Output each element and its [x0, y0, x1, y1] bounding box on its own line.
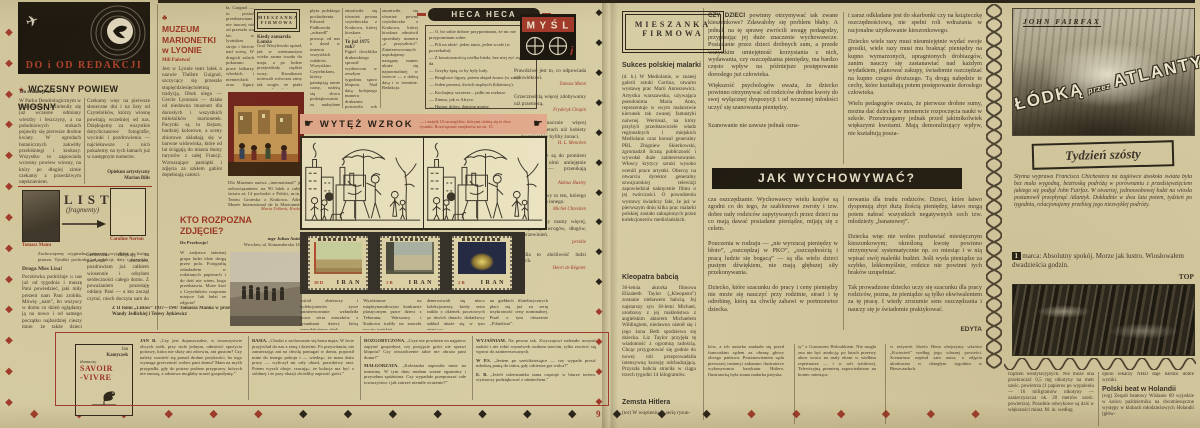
qa-lead: W P.S. — [476, 358, 491, 363]
qa-column-3: ROZGORYCZONA. „Czyż nie powinien on najp… — [364, 338, 466, 400]
wych-bcol1: cza oszczędzanie. Wychowawcy wielu krajó… — [708, 196, 838, 330]
fairfax-byline: JOHN FAIRFAX — [1023, 17, 1101, 27]
column-rule — [843, 12, 844, 164]
kto-headline: KTO ROZPOZNA ZDJĘCIE? — [180, 215, 252, 237]
magazine-spread: ◆◆◆◆◆◆◆◆◆◆◆◆◆ ◆◆◆◆◆◆◆◆◆◆◆◆◆◆ ◆◆◆◆◆◆◆◆◆◆◆… — [0, 0, 1200, 428]
zemsta-body: (tor) W więzieniu za serię rysun- — [622, 410, 696, 424]
left-border-diamond-icons: ◆◆◆◆◆◆◆◆◆◆◆◆◆ — [2, 28, 16, 408]
muzeum-headline: MUZEUM MARIONETKI w LYONIE — [162, 24, 216, 56]
holandia-intro2: opinii lekarzy NHD daje bardzo dobre wyn… — [1102, 372, 1194, 384]
rope-border-horizontal — [1004, 358, 1196, 370]
column-rule — [342, 8, 343, 108]
column-rule — [248, 336, 249, 400]
qa-column-2: BASIA. „Chodzi o zachowanie się brata mę… — [252, 338, 354, 400]
arrow-right-icon — [62, 219, 106, 229]
redakcja-col1: W Parku Dendrologicznym w Przelewicach z… — [19, 98, 81, 184]
tydzien-box: Tydzień szósty — [1032, 140, 1175, 170]
kto-signature: mgr Julian Aniok Wrocław, ul. Komandorsk… — [238, 236, 302, 247]
section-rule — [18, 186, 152, 187]
mini-mieszanka-body: Graf Wasylewski opisał, jak w osiemnasty… — [257, 43, 302, 89]
qa-column-4: WYJAŚNIAM. Na pewno tak. Zwyczajowi nale… — [476, 338, 596, 400]
mini-mieszanka-box: MIESZANKA FIRMOWA — [257, 12, 297, 29]
stamp-note: denerwowali się nieco kolekcjonerzy, kie… — [427, 298, 485, 330]
stamp-2-art — [386, 242, 434, 274]
center-col-b: Figiel chochlika drukarskiego sprawił wy… — [345, 49, 377, 109]
kultura-col2: w reżyserii Józefa Hena obejrzymy wkrótc… — [890, 344, 982, 424]
atlantic-title-1: ŁÓDKĄ — [1013, 79, 1086, 113]
qa-item: BASIA. „Chodzi o zachowanie się brata mę… — [252, 338, 354, 377]
rope-border — [986, 4, 1002, 370]
kto-body: W zadymce śnieżnej grupa ludzi idzie dro… — [180, 250, 226, 328]
atlantic-title: ŁÓDKĄ przez ATLANTYK — [1013, 48, 1200, 115]
qa-lead: BASIA. — [252, 338, 267, 343]
mysli-logo: M Y Ś L i — [520, 14, 576, 60]
pointing-hand-icon: ☛ — [304, 119, 314, 130]
wytez-banner: ☛ WYTĘŻ WZROK — i znajdź 10 szczegółów, … — [300, 114, 547, 134]
atlantic-wave-illustration: JOHN FAIRFAX ŁÓDKĄ przez ATLANTYK — [1012, 8, 1195, 136]
redakcja-signature: Opiekun artystyczny Marian Bilis — [87, 170, 150, 182]
mysli-logo-letters: M Y Ś L — [527, 19, 570, 32]
wychowywac-banner: JAK WYCHOWYWAĆ? — [712, 168, 962, 189]
stamp-3-value: 2 R — [458, 280, 465, 285]
mysli-quote: Grzecznością więcej zdobywamy niż przemo… — [514, 94, 586, 113]
stamp-1-country: IRAN — [337, 280, 362, 286]
muzeum-below-text: Dla Muzeum nazwa „international” jest zo… — [228, 180, 304, 206]
kleopatra-body: 36-letnia aktorka filmowa Elizabeth Tayl… — [622, 285, 696, 395]
redakcja-kicker: Do redakcji nr 1 — [20, 90, 55, 95]
wych-p2: Większość psychologów uważa, że dziecko … — [708, 82, 838, 111]
qa-lead: E. B. — [476, 372, 487, 377]
wych-c2p1: i zaraz odkładane jest do skarbonki czy … — [848, 12, 982, 34]
listy-subtitle: (fragmenty) — [66, 206, 99, 214]
zemsta-continuation: ków, a ich autorka znalazła się przed fr… — [708, 344, 784, 424]
stamps-strip: 50 D IRAN 1 R IRAN 2 R IRAN — [300, 232, 525, 294]
heca-tick-left — [417, 13, 426, 16]
heca-line: — Pili na złość: jeden tanio, jeden wcal… — [429, 42, 533, 53]
heca-line: — O, bo sobie dobrze przypominam, że nic… — [429, 29, 533, 40]
qa-text: „Czy jest dopuszczalne, w towarzystwie o… — [140, 338, 242, 376]
wych-c2p3: Wielu pedagogów uważa, że pierwsze drobn… — [848, 100, 982, 137]
column-rule — [84, 98, 85, 184]
qa-lead: JAN B. — [140, 338, 156, 343]
qa-item: JAN B. „Czy jest dopuszczalne, w towarzy… — [140, 338, 242, 377]
letter-recipient-name: Caroline Norton — [110, 237, 144, 242]
mysli-quote: Prawdziwe jest to, co odpowiada człowiek… — [514, 68, 586, 87]
qa-text: „Chodzi o zachowanie się brata męża. W l… — [252, 338, 354, 376]
qa-item: W P.S. „Jestem po sześćdziesiątce — czy … — [476, 358, 596, 369]
column-rule — [703, 8, 704, 420]
log-day-badge: 1 — [1012, 252, 1021, 260]
mieszanka-box-line2: FIRMOWA — [626, 29, 720, 38]
ocean-photo — [1012, 284, 1195, 356]
masthead-title: DO i OD REDAKCJI — [18, 60, 150, 71]
center-col-c: zmartwiła się również pewna czytelniczka… — [382, 8, 418, 108]
holandia-col2: opinii lekarzy NHD daje bardzo dobre wyn… — [1102, 372, 1194, 426]
log-entry: 1 marca: Absolutny spokój. Morze jak lus… — [1012, 252, 1194, 270]
muzeum-kicker: Mili Państwo! — [162, 58, 191, 63]
qa-text: „Jeżeli solenizantka sama częstuje w biu… — [476, 372, 596, 383]
mini-mieszanka-line2: FIRMOWA — [258, 20, 296, 25]
column-rule — [1098, 372, 1099, 426]
stamp-2: 1 R IRAN — [380, 236, 440, 290]
muzeum-col1: Jest w Lyonie teatr lalek o nazwie Théât… — [162, 66, 222, 214]
quote-author: Fryderyk Chopin — [514, 108, 586, 113]
drawing-left — [302, 138, 424, 228]
wych-bcol2: nowania dla trudu rodziców. Dzieci, któr… — [848, 196, 982, 324]
column-rule — [794, 344, 795, 424]
muzeum-headline-1: MUZEUM — [162, 24, 216, 35]
center-col-a: płyta polskiego pochodzenia. Edward Fiał… — [310, 8, 340, 108]
wych-lead: powinny otrzymywać tak zwane kieszonkowe… — [708, 12, 838, 78]
holandia-headline: Polski beat w Holandii — [1102, 386, 1194, 393]
mieszanka-box: MIESZANKA FIRMOWA — [625, 14, 721, 50]
stamp-1: 50 D IRAN — [308, 236, 368, 290]
holandia-body: (rog) Zespół beatowy Wiślanie 69 wyjedzi… — [1102, 394, 1194, 418]
wych-col2: i zaraz odkładane jest do skarbonki czy … — [848, 12, 982, 164]
qa-item: MAŁGORZATA. „Koleżanka zaprosiła mnie na… — [364, 363, 466, 385]
stamp-notes: wśród zbieraczy i kolekcjonerów żywe zai… — [300, 298, 548, 330]
column-rule — [843, 196, 844, 330]
kto-headline-2: ZDJĘCIE? — [180, 226, 252, 237]
masthead-graphic-panel: ✈ DO i OD REDAKCJI — [18, 2, 150, 74]
heca-line: — Z kosztownością wielka bieda, bez niej… — [429, 55, 533, 66]
muzeum-col2: ła, Guignol — to postać przedstawiana ni… — [226, 5, 254, 89]
drawing-left-art — [302, 138, 423, 228]
kto-sig-address: Wrocław, ul. Komandorska 141 — [238, 242, 302, 248]
stamp-1-value: 50 D — [314, 280, 323, 285]
letter-recipient-frame — [110, 188, 146, 236]
quote-text: Prawdziwe jest to, co odpowiada człowiek… — [514, 68, 586, 81]
zemsta-headline: Zemsta Hitlera — [622, 399, 702, 406]
malarka-headline: Sukces polskiej malarki — [622, 62, 702, 69]
qa-item: E. B. „Jeżeli solenizantka sama częstuje… — [476, 372, 596, 383]
malarka-body: (d. h.) W Mediolanie, w znanej galerii s… — [622, 74, 696, 270]
center-col-b-top: zmartwiła się również pewna czytelniczka… — [345, 8, 377, 38]
qa-lead: MAŁGORZATA. — [364, 363, 398, 368]
redakcja-sig-name: Marian Bilis — [87, 176, 150, 182]
column-rule — [885, 344, 886, 424]
wych-signature: EDYTA — [848, 326, 982, 333]
stamp-2-value: 1 R — [386, 280, 393, 285]
stamp-script-line — [462, 238, 502, 241]
tydzien-title: Tydzień szósty — [1065, 146, 1141, 163]
atlantic-intro: Słynna wyprawa Francisca Chichestera na … — [1014, 174, 1192, 248]
kto-headline-1: KTO ROZPOZNA — [180, 215, 252, 226]
stamp-note: Wyróżnione na międzynarodowym konkursie … — [363, 298, 421, 330]
stamp-3-country: IRAN — [481, 280, 506, 286]
redakcja-col2: Czekamy więc na pierwsze słoneczne dni i… — [87, 98, 150, 168]
stamp-3-art — [458, 242, 506, 274]
drawing-right-art — [424, 138, 545, 228]
stamp-note: na giełdach filatelistycznych płaci się … — [490, 298, 548, 330]
column-rule — [380, 8, 381, 108]
snow-group-photo — [230, 252, 302, 326]
listy-col1: Pocztówka podróżuje u nas już od tygodni… — [22, 274, 82, 328]
qa-lead: WYJAŚNIAM. — [476, 338, 506, 343]
qa-column-1: JAN B. „Czy jest dopuszczalne, w towarzy… — [140, 338, 242, 400]
top-rule — [158, 0, 1195, 3]
letter-author-photo — [22, 190, 60, 242]
wytez-title: WYTĘŻ WZROK — [320, 119, 414, 130]
atlantic-title-2: ATLANTYK — [1112, 49, 1200, 91]
wych-p3: Szanowanie nie zawsze jednak ozna- — [708, 122, 838, 129]
quote-author: Tomasz Mann — [514, 82, 586, 87]
muzeum-headline-3: w LYONIE — [162, 45, 216, 56]
column-rule — [360, 336, 361, 400]
kleopatra-headline: Kleopatra babcią — [622, 274, 702, 281]
atlantic-title-mid: przez — [1088, 83, 1112, 95]
column-rule — [472, 336, 473, 400]
holandia-col1: rządzeń wentylacyjnych. Nie może ona prz… — [1008, 372, 1094, 426]
stamp-note: wśród zbieraczy i kolekcjonerów żywe zai… — [300, 298, 358, 330]
stamp-script-line — [390, 238, 430, 241]
wych-col1: CZY DZIECI powinny otrzymywać tak zwane … — [708, 12, 838, 164]
muzeum-signature: Maria Tolkmit, Kraków — [228, 206, 304, 211]
qa-item: ROZGORYCZONA. „Czyż nie powinien on najp… — [364, 338, 466, 360]
muzeum-headline-2: MARIONETKI — [162, 35, 216, 46]
stamp-3: 2 R IRAN — [452, 236, 512, 290]
stamp-2-country: IRAN — [409, 280, 434, 286]
airplane-icon: ✈ — [23, 11, 41, 33]
club-icon: ♣ — [162, 13, 167, 22]
drawing-right — [424, 138, 545, 228]
wytez-note: — i znajdź 10 szczegółów, którymi różnią… — [420, 119, 522, 130]
puppet-theatre-painting — [228, 92, 304, 176]
kultura-col1: ty” z Gustawem Holoubkiem. Nie mogła ona… — [798, 344, 876, 424]
spot-the-difference-panel — [300, 136, 547, 230]
qa-lead: ROZGORYCZONA. — [364, 338, 405, 343]
listy-col2: Serdecznie dziękuję za pierwsze obietnic… — [87, 252, 149, 302]
pointing-hand-icon: ☛ — [533, 119, 543, 130]
page-number: 9 — [596, 409, 601, 419]
wych-lead-strong: CZY DZIECI — [708, 12, 745, 19]
letter-salutation: Droga Miss Lisa! — [22, 266, 62, 272]
wych-c2p2: Dziecko wiele razy musi nieumiejętnie wy… — [848, 38, 982, 97]
stamp-script-line — [318, 238, 358, 241]
qa-text: „Jestem po sześćdziesiątce — czy wypada … — [476, 358, 596, 369]
letter-author-name: Tomasz Mann — [22, 243, 51, 248]
dove-rings-icon — [80, 3, 146, 63]
quote-text: Grzecznością więcej zdobywamy niż przemo… — [514, 94, 586, 107]
stamp-1-art — [314, 242, 362, 274]
kto-kicker: Do Przekroju! — [180, 240, 208, 245]
column-rule — [157, 4, 158, 330]
log-text: marca: Absolutny spokój. Morze jak lustr… — [1012, 252, 1184, 269]
qa-item: WYJAŚNIAM. Na pewno tak. Zwyczajowi nale… — [476, 338, 596, 355]
mieszanka-box-line1: MIESZANKA — [626, 20, 720, 29]
log-signature: TOP — [1012, 272, 1194, 281]
